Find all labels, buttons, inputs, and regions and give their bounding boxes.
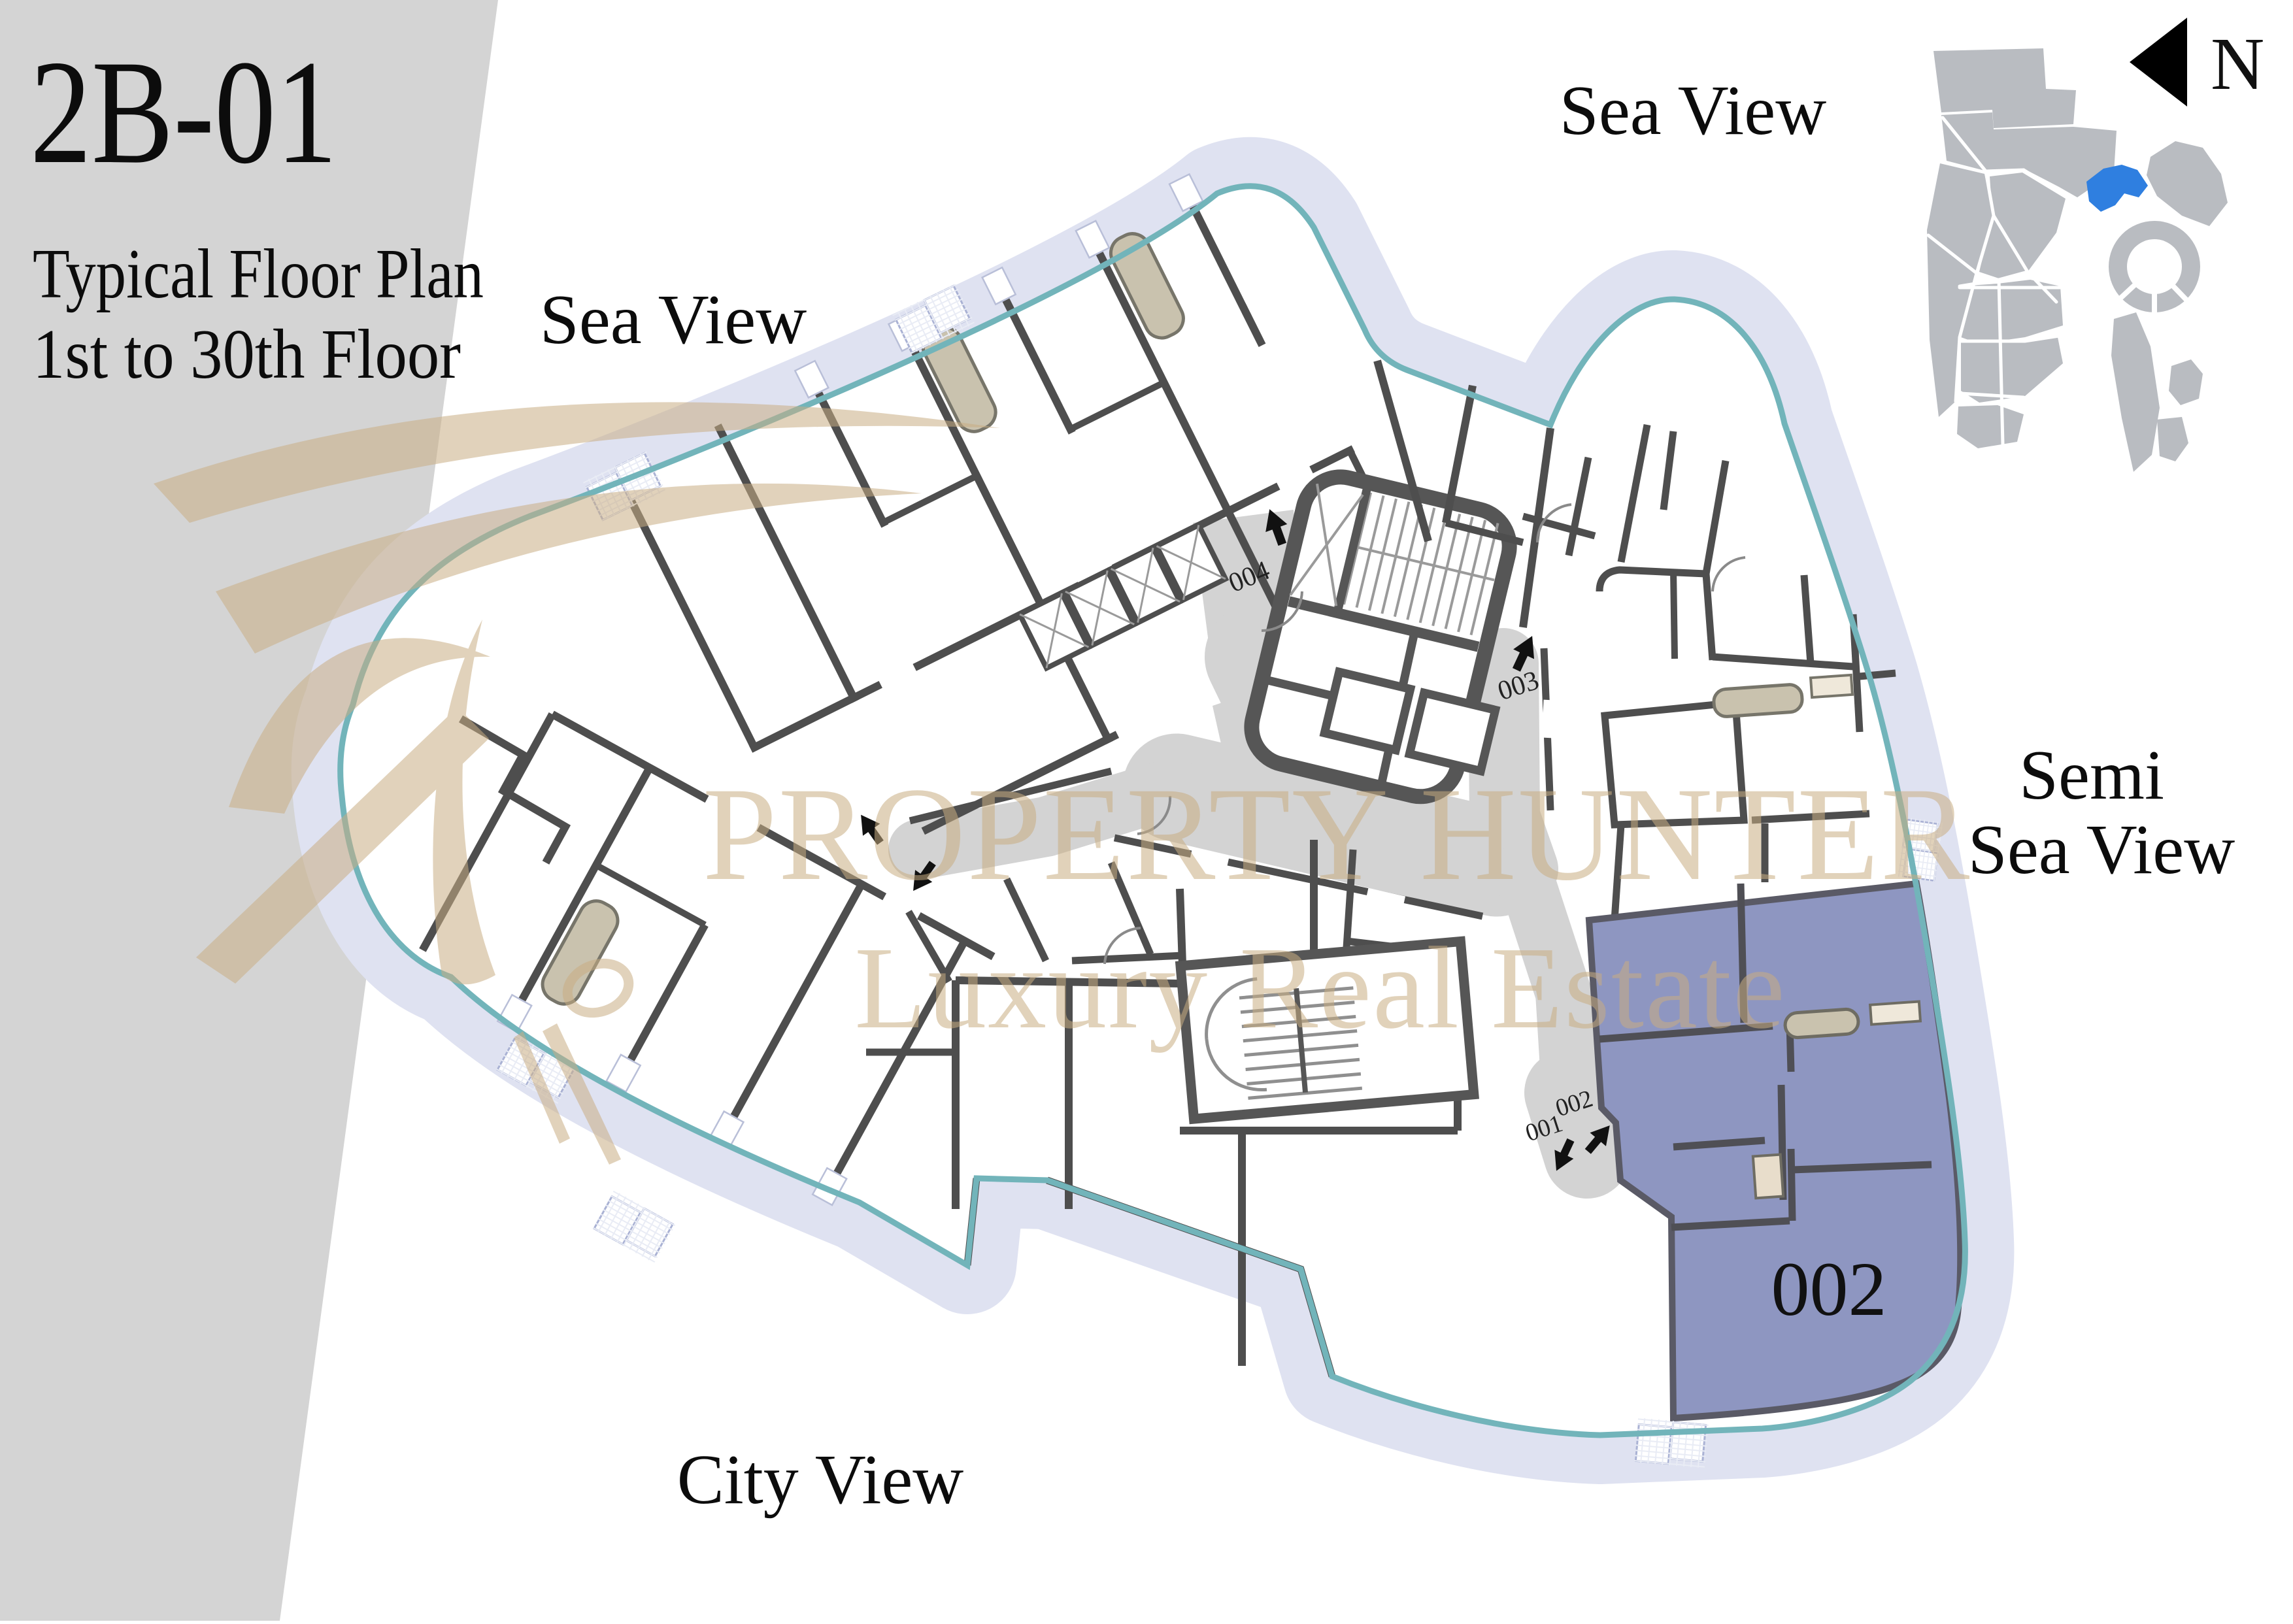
svg-text:2B-01: 2B-01: [30, 30, 337, 195]
svg-text:1st to 30th Floor: 1st to 30th Floor: [33, 316, 461, 393]
svg-text:Typical Floor Plan: Typical Floor Plan: [33, 235, 484, 313]
svg-text:002: 002: [1771, 1246, 1887, 1332]
svg-text:Sea View: Sea View: [1560, 72, 1826, 150]
svg-text:City View: City View: [677, 1441, 964, 1519]
svg-text:N: N: [2211, 22, 2264, 105]
svg-text:Sea View: Sea View: [1968, 811, 2235, 889]
svg-text:Sea View: Sea View: [540, 281, 807, 359]
svg-text:Luxury Real Estate: Luxury Real Estate: [854, 923, 1786, 1053]
svg-text:PROPERTY HUNTER: PROPERTY HUNTER: [703, 760, 1971, 908]
svg-text:Semi: Semi: [2019, 737, 2164, 814]
